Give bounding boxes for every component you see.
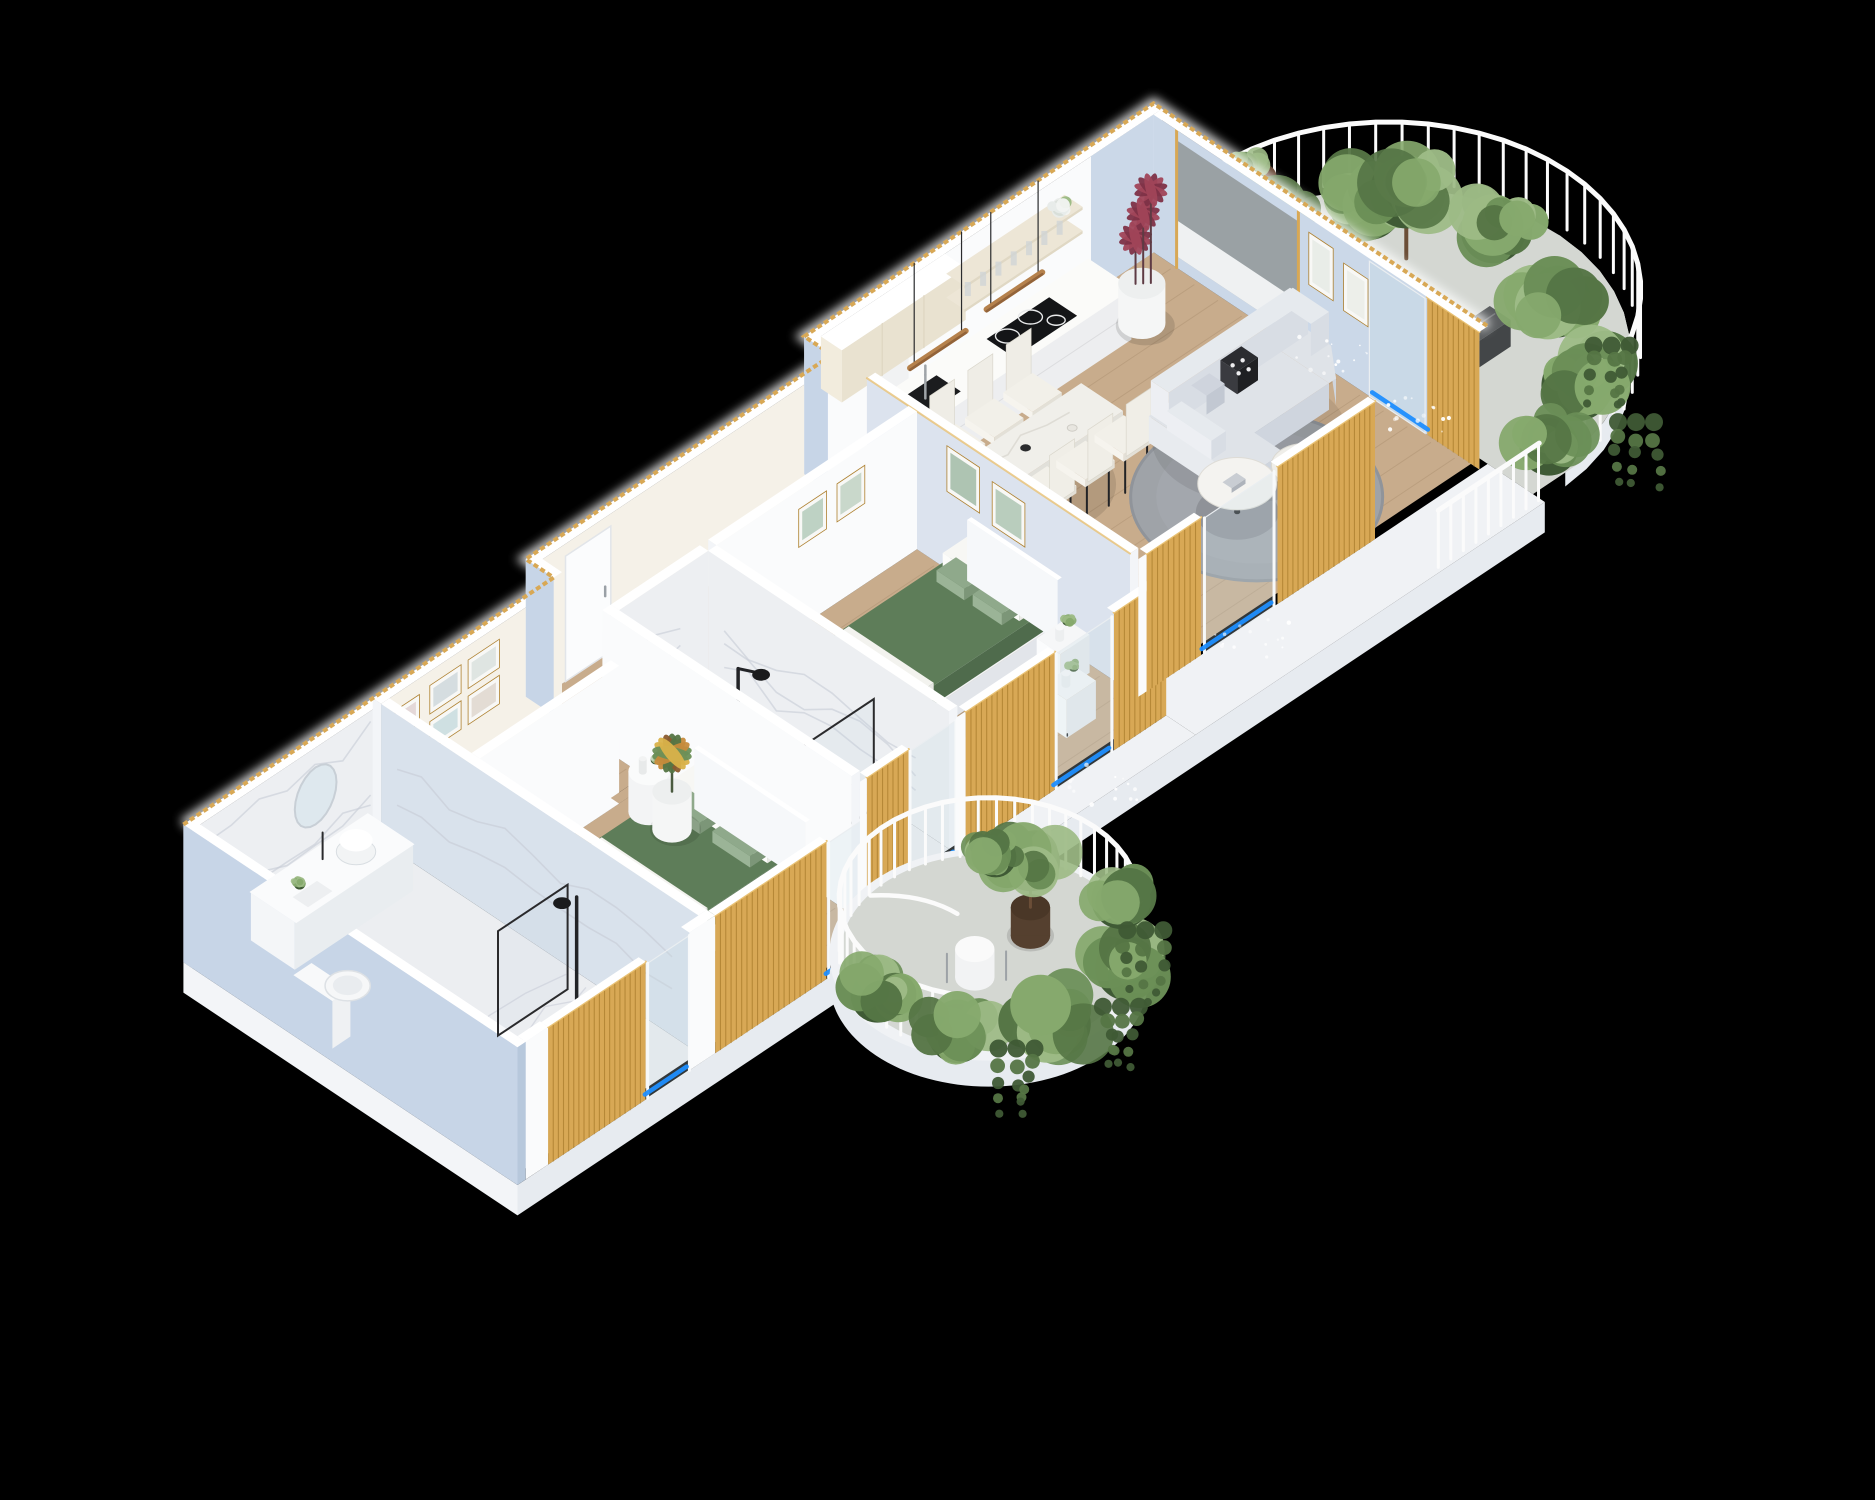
apartment-floorplan-render <box>0 0 1875 1500</box>
render-stage <box>0 0 1875 1500</box>
